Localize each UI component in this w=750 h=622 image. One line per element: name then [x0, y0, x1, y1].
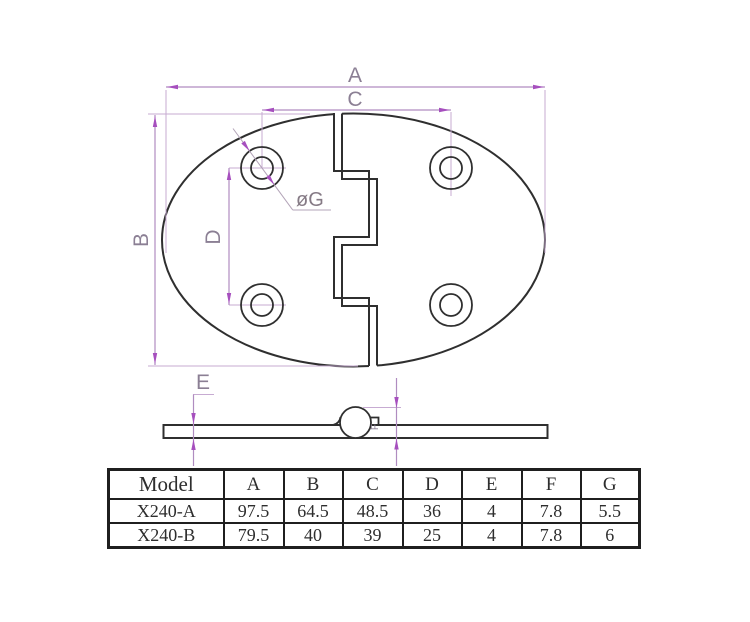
dim-d-label: D: [202, 229, 225, 244]
cell-value: 4: [462, 523, 522, 548]
hinge-side-view: F: [164, 407, 548, 438]
arrowhead-down-icon: [191, 413, 195, 424]
cell-value: 79.5: [224, 523, 284, 548]
dim-f-label: F: [370, 424, 381, 430]
cell-value: 40: [284, 523, 343, 548]
hinge-drawing-page: A C B D øG F E: [0, 0, 750, 622]
col-header-c: C: [343, 470, 403, 500]
col-header-model: Model: [109, 470, 224, 500]
arrowhead-left-icon: [167, 85, 178, 89]
col-header-a: A: [224, 470, 284, 500]
col-header-b: B: [284, 470, 343, 500]
cell-value: 5.5: [581, 499, 640, 523]
cell-value: 4: [462, 499, 522, 523]
dim-b-label: B: [130, 233, 153, 247]
arrowhead-left-icon: [263, 108, 274, 112]
cell-value: 7.8: [522, 499, 581, 523]
spec-table-row-x240b: X240-B 79.5 40 39 25 4 7.8 6: [109, 523, 640, 548]
spec-table-row-x240a: X240-A 97.5 64.5 48.5 36 4 7.8 5.5: [109, 499, 640, 523]
arrowhead-up-icon: [153, 116, 157, 127]
cell-value: 48.5: [343, 499, 403, 523]
spec-table-header-row: Model A B C D E F G: [109, 470, 640, 500]
col-header-f: F: [522, 470, 581, 500]
cell-value: 97.5: [224, 499, 284, 523]
cell-value: 36: [403, 499, 462, 523]
cell-value: 7.8: [522, 523, 581, 548]
dim-a-label: A: [348, 64, 362, 87]
dimension-c: C: [262, 88, 451, 112]
dim-e-label: E: [196, 371, 210, 394]
col-header-e: E: [462, 470, 522, 500]
arrowhead-up-icon: [191, 439, 195, 450]
arrowhead-down-icon: [394, 397, 398, 408]
cell-model: X240-B: [109, 523, 224, 548]
cell-value: 64.5: [284, 499, 343, 523]
arrowhead-down-icon: [153, 353, 157, 364]
dim-c-label: C: [347, 88, 362, 111]
arrowhead-right-icon: [439, 108, 450, 112]
cell-value: 6: [581, 523, 640, 548]
dia-g-label: øG: [296, 189, 324, 211]
col-header-d: D: [403, 470, 462, 500]
arrowhead-up-icon: [394, 439, 398, 450]
cell-value: 25: [403, 523, 462, 548]
cell-value: 39: [343, 523, 403, 548]
spec-table: Model A B C D E F G X240-A 97.5 64.5 48.…: [107, 468, 641, 549]
arrowhead-right-icon: [533, 85, 544, 89]
side-view-knuckle: [340, 407, 371, 438]
cell-model: X240-A: [109, 499, 224, 523]
col-header-g: G: [581, 470, 640, 500]
dimension-e: E: [191, 371, 214, 466]
